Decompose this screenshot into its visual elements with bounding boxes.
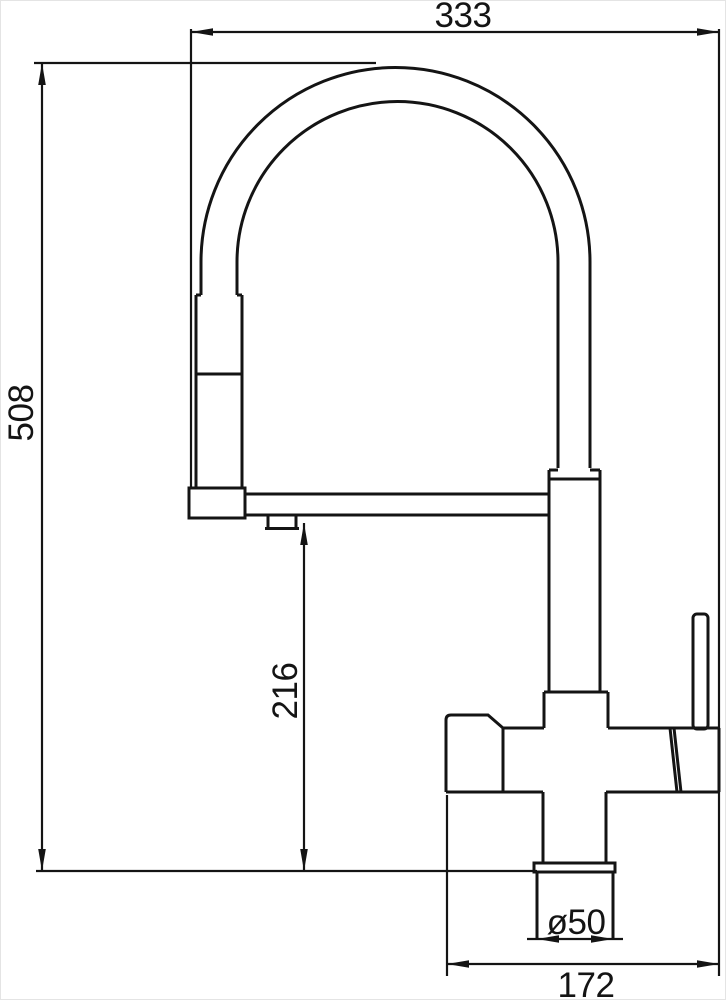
faucet-dimension-drawing: 333 508 216 ø50 bbox=[0, 0, 726, 1000]
dim-overall-width: 333 bbox=[191, 1, 719, 976]
dim-label-overall-width: 333 bbox=[435, 1, 492, 35]
faucet-outline bbox=[189, 67, 719, 939]
dim-base-diameter: ø50 bbox=[527, 903, 623, 943]
handle-lever bbox=[693, 614, 708, 729]
base-flange bbox=[534, 863, 615, 872]
dim-label-body-width: 172 bbox=[558, 966, 615, 1000]
spray-head bbox=[189, 295, 245, 518]
dim-label-spout-height: 216 bbox=[266, 663, 305, 720]
spray-head-dock bbox=[189, 488, 245, 518]
dim-spout-height: 216 bbox=[266, 523, 308, 871]
dim-label-overall-height: 508 bbox=[2, 385, 41, 442]
dim-body-width: 172 bbox=[447, 795, 719, 1000]
left-valve-block bbox=[446, 715, 503, 792]
spring-hose-arc bbox=[201, 67, 590, 468]
outlet-nozzle bbox=[265, 515, 299, 529]
riser-pipe bbox=[544, 470, 608, 728]
dim-overall-height: 508 bbox=[2, 63, 376, 871]
faucet-drawing-svg: 333 508 216 ø50 bbox=[1, 1, 726, 1000]
support-arm bbox=[245, 494, 549, 515]
dim-label-base-diameter: ø50 bbox=[547, 903, 606, 942]
faucet-body bbox=[446, 715, 719, 792]
